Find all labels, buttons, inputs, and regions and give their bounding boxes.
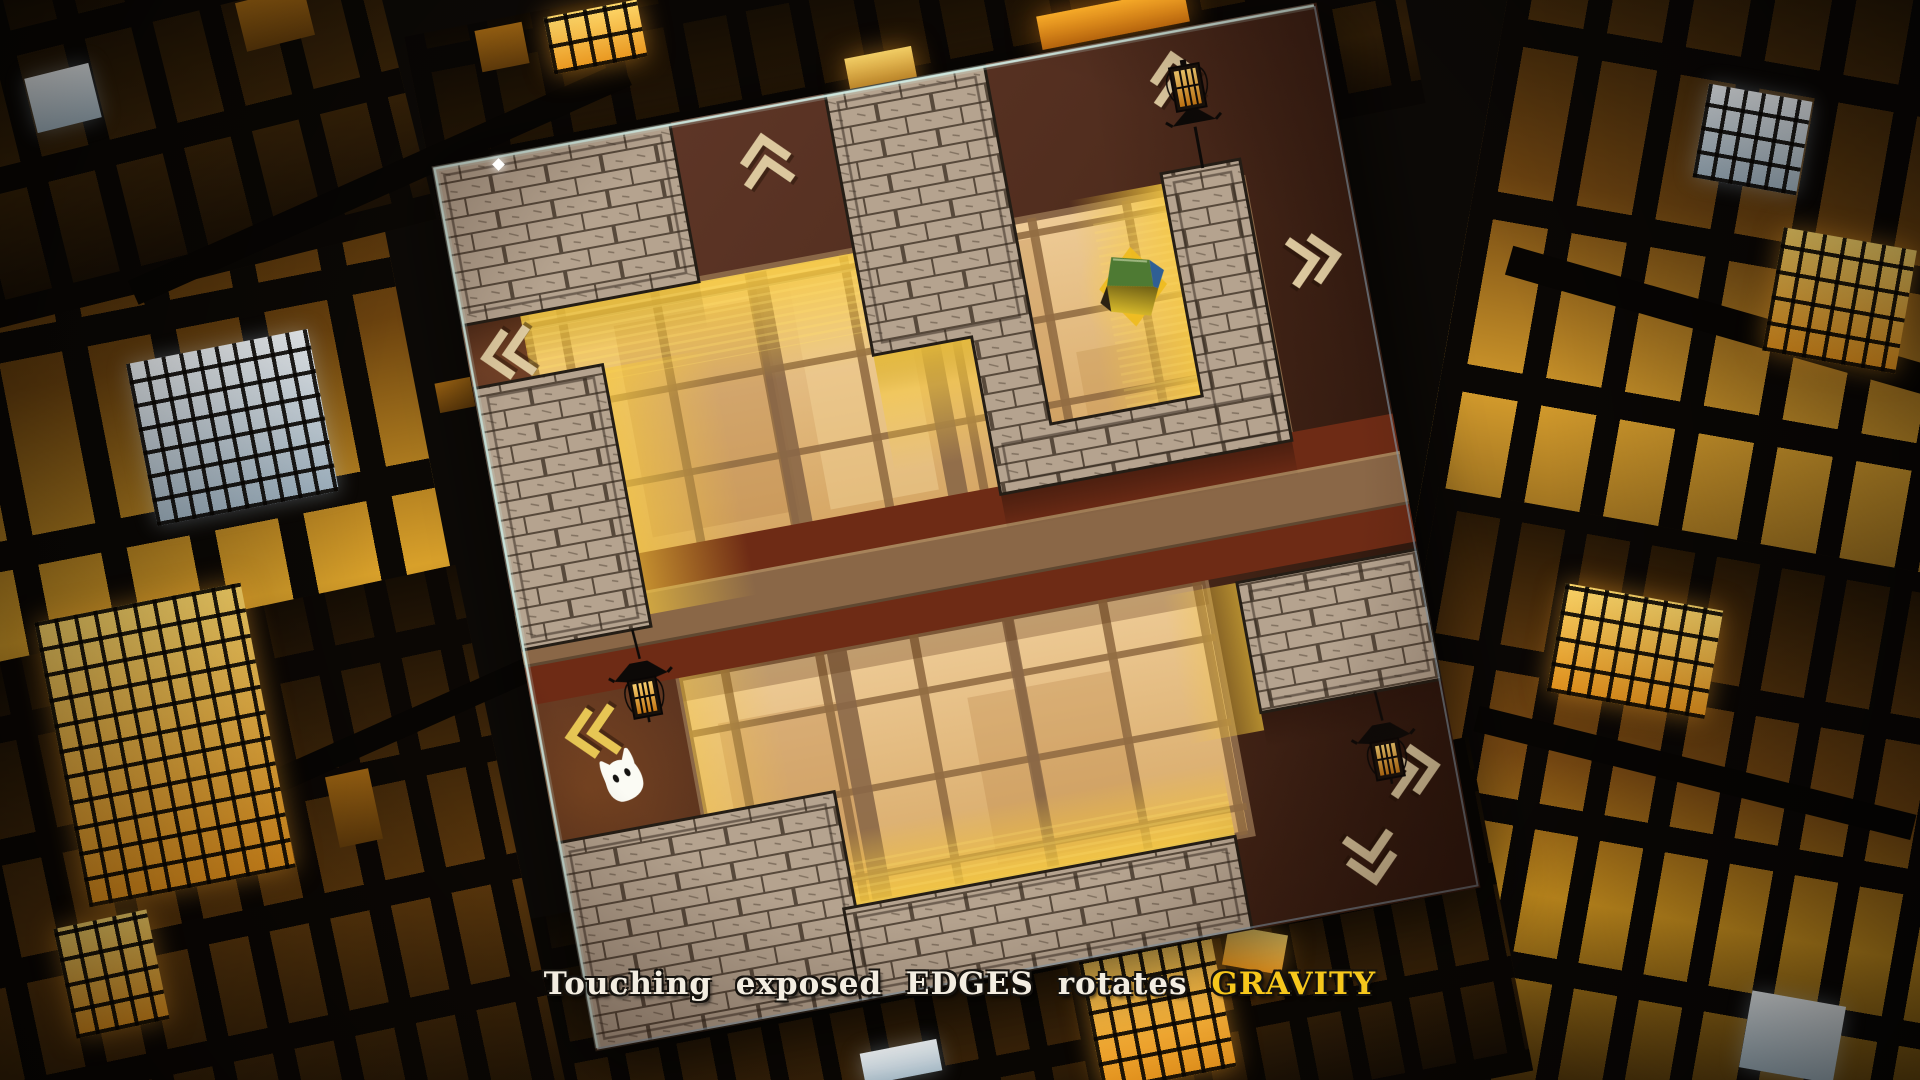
lit-window — [1547, 583, 1724, 719]
game-viewport[interactable]: Touching exposed EDGES rotates GRAVITY — [0, 0, 1920, 1080]
tutorial-caption: Touching exposed EDGES rotates GRAVITY — [0, 966, 1920, 1002]
lit-window — [1739, 990, 1846, 1080]
girder-silhouette — [1474, 706, 1917, 840]
lit-window — [434, 377, 475, 413]
lit-window — [24, 63, 102, 133]
lit-window — [325, 768, 383, 848]
puzzle-board[interactable] — [432, 3, 1481, 1052]
caption-text: Touching exposed EDGES rotates — [544, 966, 1212, 1002]
lit-window — [860, 1039, 943, 1080]
lit-window — [1762, 227, 1917, 374]
lit-window — [1693, 84, 1813, 196]
lit-window — [235, 0, 315, 52]
building — [0, 0, 437, 330]
lit-window — [126, 329, 339, 526]
building — [1378, 0, 1920, 835]
building — [0, 565, 572, 1080]
lit-window — [34, 583, 295, 908]
girder-silhouette — [1505, 246, 1920, 404]
board-vignette — [432, 3, 1481, 1052]
lit-window — [474, 22, 529, 72]
lit-window — [543, 0, 647, 75]
caption-highlight: GRAVITY — [1211, 966, 1376, 1002]
